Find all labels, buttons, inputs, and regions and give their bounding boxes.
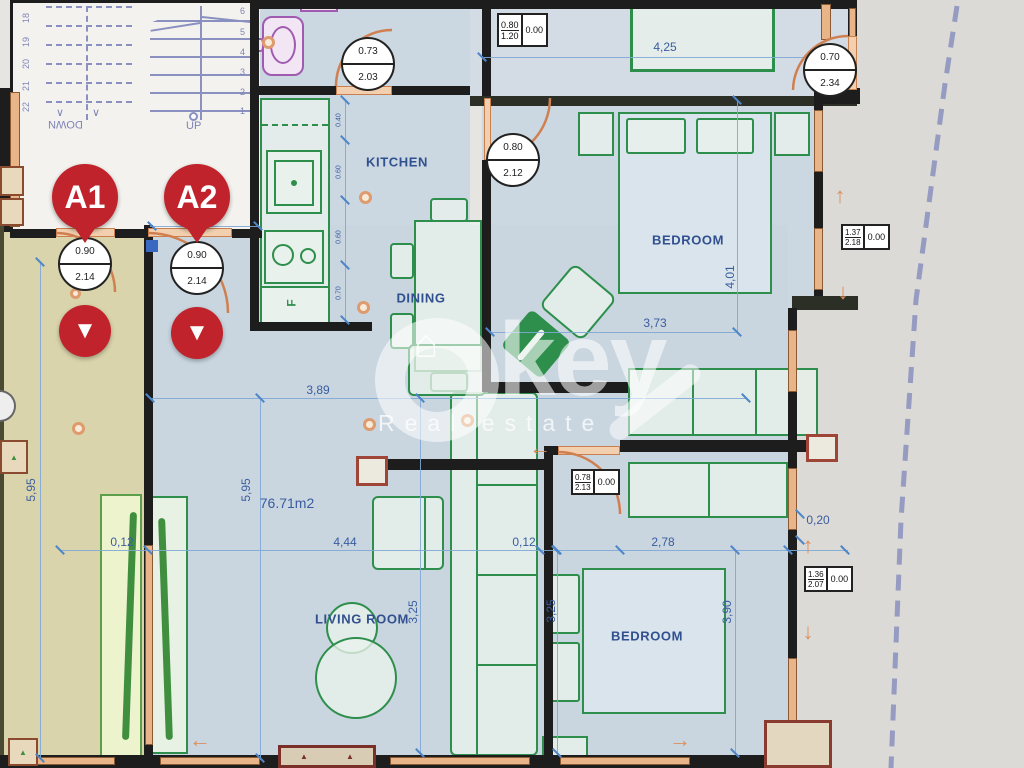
floor-plan: ∨ ∨ 18 19 20 21 22 6 5 4 3 2 1 UP DOWN xyxy=(0,0,1024,768)
down-arrow-icon: ▼ xyxy=(73,317,97,345)
window-width: 0.78 xyxy=(575,473,591,483)
window-sill: 0.00 xyxy=(595,471,619,493)
window xyxy=(145,545,153,745)
down-arrow-icon: ▼ xyxy=(185,319,209,347)
stair-flight-up xyxy=(150,4,254,122)
area-label: 76.71m2 xyxy=(260,495,314,511)
dimension-label: 5,95 xyxy=(239,478,253,501)
chair xyxy=(390,243,414,279)
light-dot xyxy=(461,414,474,427)
door-height: 2.14 xyxy=(60,265,110,289)
wall xyxy=(250,322,372,331)
dimension-label: 3,90 xyxy=(720,600,734,623)
window-detail-frame: ▲ ▲ xyxy=(278,745,376,768)
wall xyxy=(250,0,857,9)
dimension-label: 5,95 xyxy=(24,478,38,501)
arrow-up-icon: ↑ xyxy=(803,533,814,559)
window-height: 2.13 xyxy=(575,483,591,492)
arrow-down-icon: ↓ xyxy=(838,279,849,305)
door-spec-bathroom: 0.73 2.03 xyxy=(341,37,395,91)
dimension-label: 3,89 xyxy=(306,383,329,397)
unit-label: A1 xyxy=(65,179,106,216)
window-spec-right-lower: 1.362.07 0.00 xyxy=(804,566,853,592)
door-height: 2.14 xyxy=(172,269,222,293)
marker-tail xyxy=(186,227,208,254)
door-opening xyxy=(558,446,620,455)
window-height: 2.07 xyxy=(808,580,824,589)
pillow xyxy=(626,118,686,154)
wall xyxy=(488,382,628,393)
door-spec-terrace: 0.70 2.34 xyxy=(803,43,857,97)
door-width: 0.73 xyxy=(343,39,393,65)
balcony-planter xyxy=(630,6,775,72)
window-height: 1.20 xyxy=(501,31,519,41)
dimension-line xyxy=(420,398,421,755)
unit-label: A2 xyxy=(177,179,218,216)
window xyxy=(788,468,797,530)
dimension-label: 3,25 xyxy=(544,599,558,622)
sofa xyxy=(450,392,538,756)
dimension-label: 3,73 xyxy=(643,316,666,330)
dimension-label: 4,01 xyxy=(723,265,737,288)
hatch-icon: ▲ xyxy=(300,752,308,761)
column-box xyxy=(0,198,24,226)
light-dot xyxy=(72,422,85,435)
wall xyxy=(620,440,818,452)
light-dot xyxy=(363,418,376,431)
stair-number: 1 xyxy=(240,106,245,116)
column-box: ▲ xyxy=(0,440,28,474)
door-height: 2.12 xyxy=(488,161,538,185)
window-sill: 0.00 xyxy=(828,568,852,590)
wardrobe xyxy=(628,462,788,518)
stair-number: 18 xyxy=(21,13,31,23)
entry-marker xyxy=(146,240,158,252)
dimension-line xyxy=(150,398,746,399)
hatch-icon: ▲ xyxy=(346,752,354,761)
dimension-line xyxy=(737,100,738,332)
light-dot xyxy=(262,36,275,49)
dimension-line xyxy=(345,100,346,322)
window xyxy=(814,228,823,290)
entrance-arrow-badge: ▼ xyxy=(59,305,111,357)
wall xyxy=(482,8,491,98)
wall xyxy=(258,86,336,95)
dimension-line xyxy=(60,550,848,551)
stair-flight-down xyxy=(46,6,132,120)
marker-tail xyxy=(74,227,96,254)
dimension-label: 0,12 xyxy=(512,535,535,549)
dimension-line xyxy=(482,57,849,58)
dimension-label: 0.70 xyxy=(336,286,343,300)
room-label-kitchen: KITCHEN xyxy=(366,155,428,170)
step-arrow-icon: ∨ xyxy=(92,106,100,119)
window-sill: 0.00 xyxy=(865,226,889,248)
column-box: ▲ xyxy=(8,738,38,766)
wall xyxy=(0,225,4,768)
dimension-line xyxy=(735,550,736,755)
window xyxy=(821,4,831,40)
window-width: 1.36 xyxy=(808,570,824,580)
column-box xyxy=(0,166,24,196)
stair-number: 2 xyxy=(240,87,245,97)
stair-number: 5 xyxy=(240,27,245,37)
room-label-bedroom-bottom: BEDROOM xyxy=(611,629,683,644)
room-label-living: LIVING ROOM xyxy=(315,612,409,627)
stair-number: 3 xyxy=(240,67,245,77)
wall xyxy=(392,86,470,95)
column-box xyxy=(356,456,388,486)
fridge-label: F xyxy=(285,299,299,306)
window xyxy=(814,110,823,172)
window-sill: 0.00 xyxy=(523,15,547,45)
nightstand xyxy=(578,112,614,156)
room-label-dining: DINING xyxy=(396,291,445,306)
door-height: 2.34 xyxy=(805,71,855,95)
door-spec-bedroom-top: 0.80 2.12 xyxy=(486,133,540,187)
stairs-up-label: UP xyxy=(186,120,201,132)
loveseat xyxy=(372,496,444,570)
wall xyxy=(482,160,491,392)
chair xyxy=(430,198,468,222)
arrow-down-icon: ↓ xyxy=(803,619,814,645)
door-width: 0.70 xyxy=(805,45,855,71)
stair-number: 22 xyxy=(21,102,31,112)
stair-number: 20 xyxy=(21,59,31,69)
hatch-icon: ▲ xyxy=(10,453,18,462)
light-dot xyxy=(359,191,372,204)
dimension-label: 0,12 xyxy=(110,535,133,549)
dimension-line xyxy=(40,262,41,760)
hatch-icon: ▲ xyxy=(19,748,27,757)
unit-marker-a1: A1 xyxy=(52,164,118,230)
dimension-label: 4,44 xyxy=(333,535,356,549)
window xyxy=(788,330,797,392)
stair-number: 21 xyxy=(21,81,31,91)
window xyxy=(788,658,797,726)
dimension-line xyxy=(557,550,558,755)
room-label-bedroom-top: BEDROOM xyxy=(652,233,724,248)
light-dot xyxy=(357,301,370,314)
stairs-down-label: DOWN xyxy=(48,118,83,130)
dimension-line xyxy=(490,332,737,333)
unit-marker-a2: A2 xyxy=(164,164,230,230)
column-box xyxy=(806,434,838,462)
ottoman xyxy=(408,344,486,396)
round-table xyxy=(315,637,397,719)
dimension-label: 0.40 xyxy=(336,113,343,127)
window-width: 1.37 xyxy=(845,228,861,238)
arrow-left-icon: ← xyxy=(529,435,551,461)
sink-drain xyxy=(291,180,297,186)
dimension-label: 0,20 xyxy=(806,513,829,527)
window-spec-right-upper: 1.372.18 0.00 xyxy=(841,224,890,250)
window-spec-hall: 0.782.13 0.00 xyxy=(571,469,620,495)
burner xyxy=(300,248,316,264)
arrow-right-icon: → xyxy=(669,727,691,753)
wall xyxy=(250,0,259,331)
window xyxy=(160,757,260,765)
arrow-left-icon: ← xyxy=(189,727,211,753)
stair-number: 6 xyxy=(240,6,245,16)
window xyxy=(390,757,530,765)
wall xyxy=(10,0,260,3)
dimension-line xyxy=(260,398,261,760)
window-spec-top: 0.801.20 0.00 xyxy=(497,13,548,47)
wall xyxy=(10,229,56,238)
window-height: 2.18 xyxy=(845,238,861,247)
dimension-label: 0.60 xyxy=(336,230,343,244)
wall xyxy=(470,96,857,106)
door-height: 2.03 xyxy=(343,65,393,89)
chair xyxy=(390,313,414,349)
entrance-arrow-badge: ▼ xyxy=(171,307,223,359)
door-width: 0.80 xyxy=(488,135,538,161)
dimension-label: 4,25 xyxy=(653,40,676,54)
balcony-box xyxy=(764,720,832,768)
dimension-label: 2,78 xyxy=(651,535,674,549)
wall xyxy=(385,459,546,470)
window xyxy=(560,757,690,765)
counter-divider xyxy=(262,124,328,126)
arrow-up-icon: ↑ xyxy=(835,183,846,209)
nightstand xyxy=(774,112,810,156)
stair-number: 19 xyxy=(21,37,31,47)
pillow xyxy=(696,118,754,154)
stair-number: 4 xyxy=(240,47,245,57)
burner xyxy=(272,244,294,266)
dimension-label: 0.60 xyxy=(336,165,343,179)
window-width: 0.80 xyxy=(501,20,519,31)
